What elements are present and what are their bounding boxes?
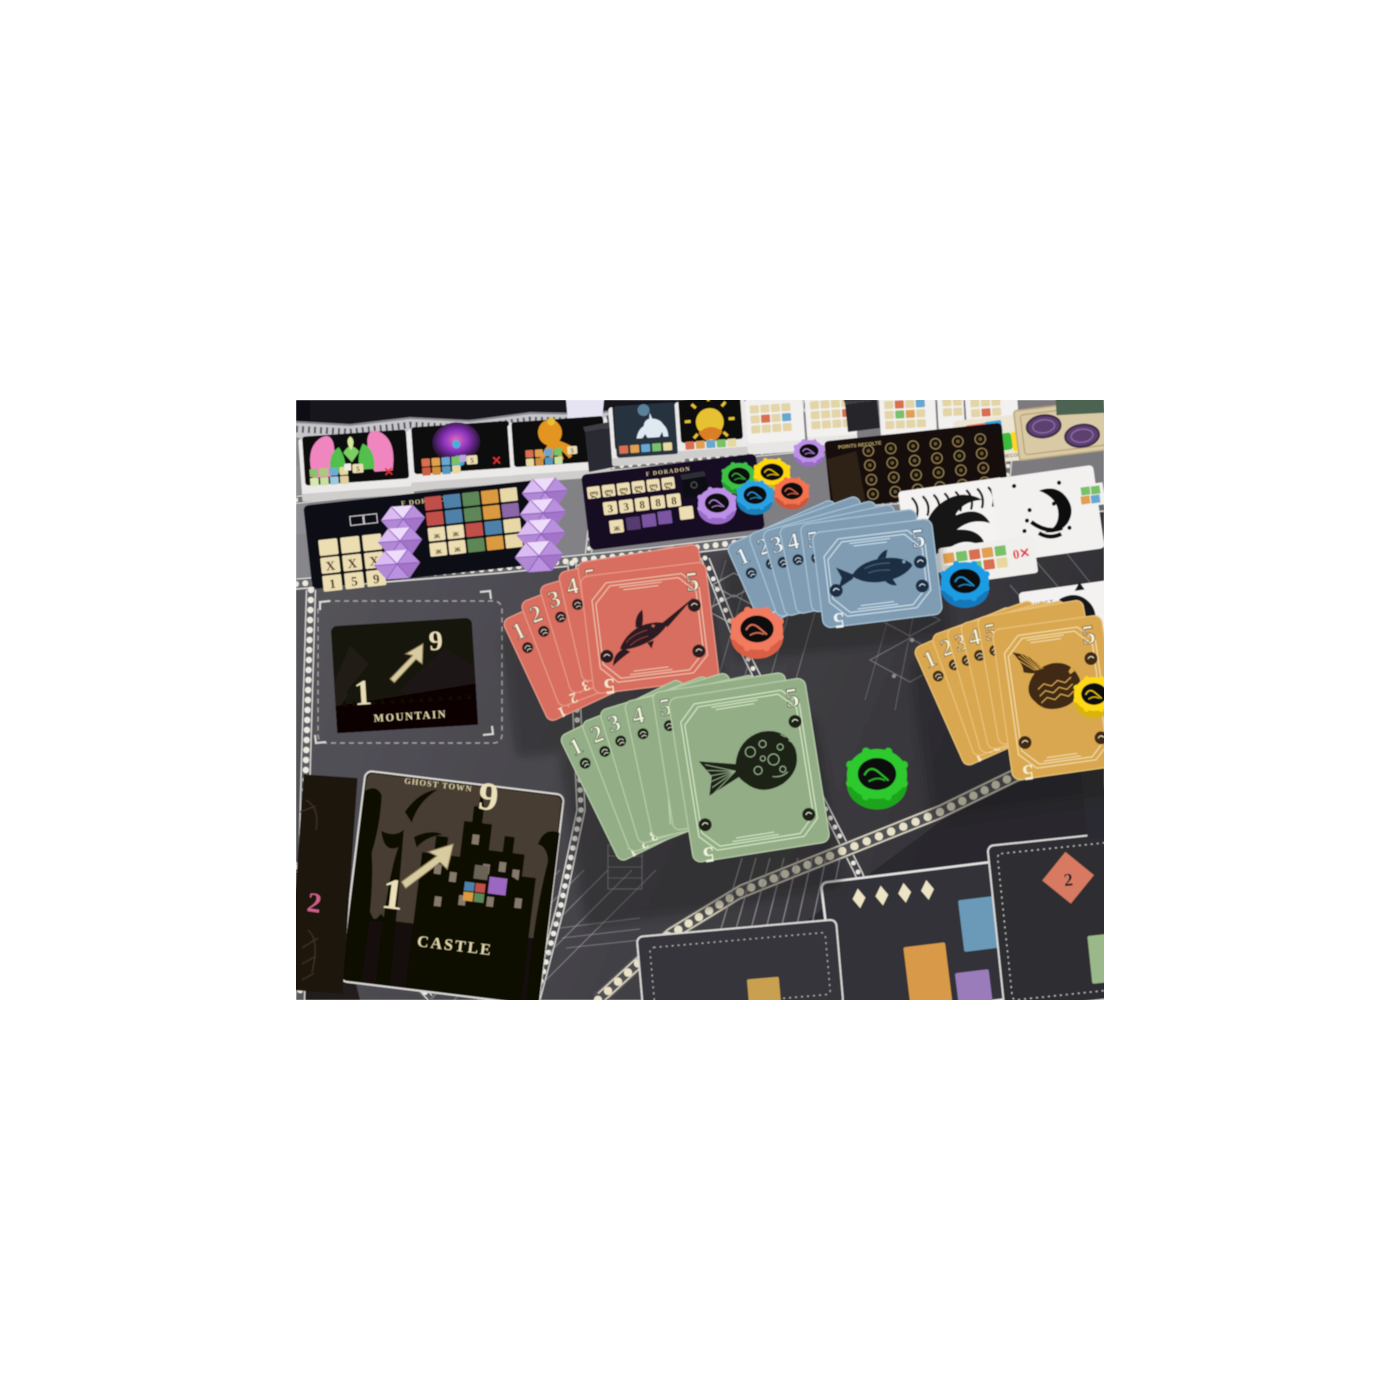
svg-text:✕: ✕ — [491, 453, 502, 468]
svg-text:0✕: 0✕ — [1012, 545, 1031, 562]
svg-text:✕: ✕ — [383, 464, 394, 479]
svg-text:1: 1 — [353, 672, 373, 713]
svg-text:9: 9 — [428, 626, 444, 658]
